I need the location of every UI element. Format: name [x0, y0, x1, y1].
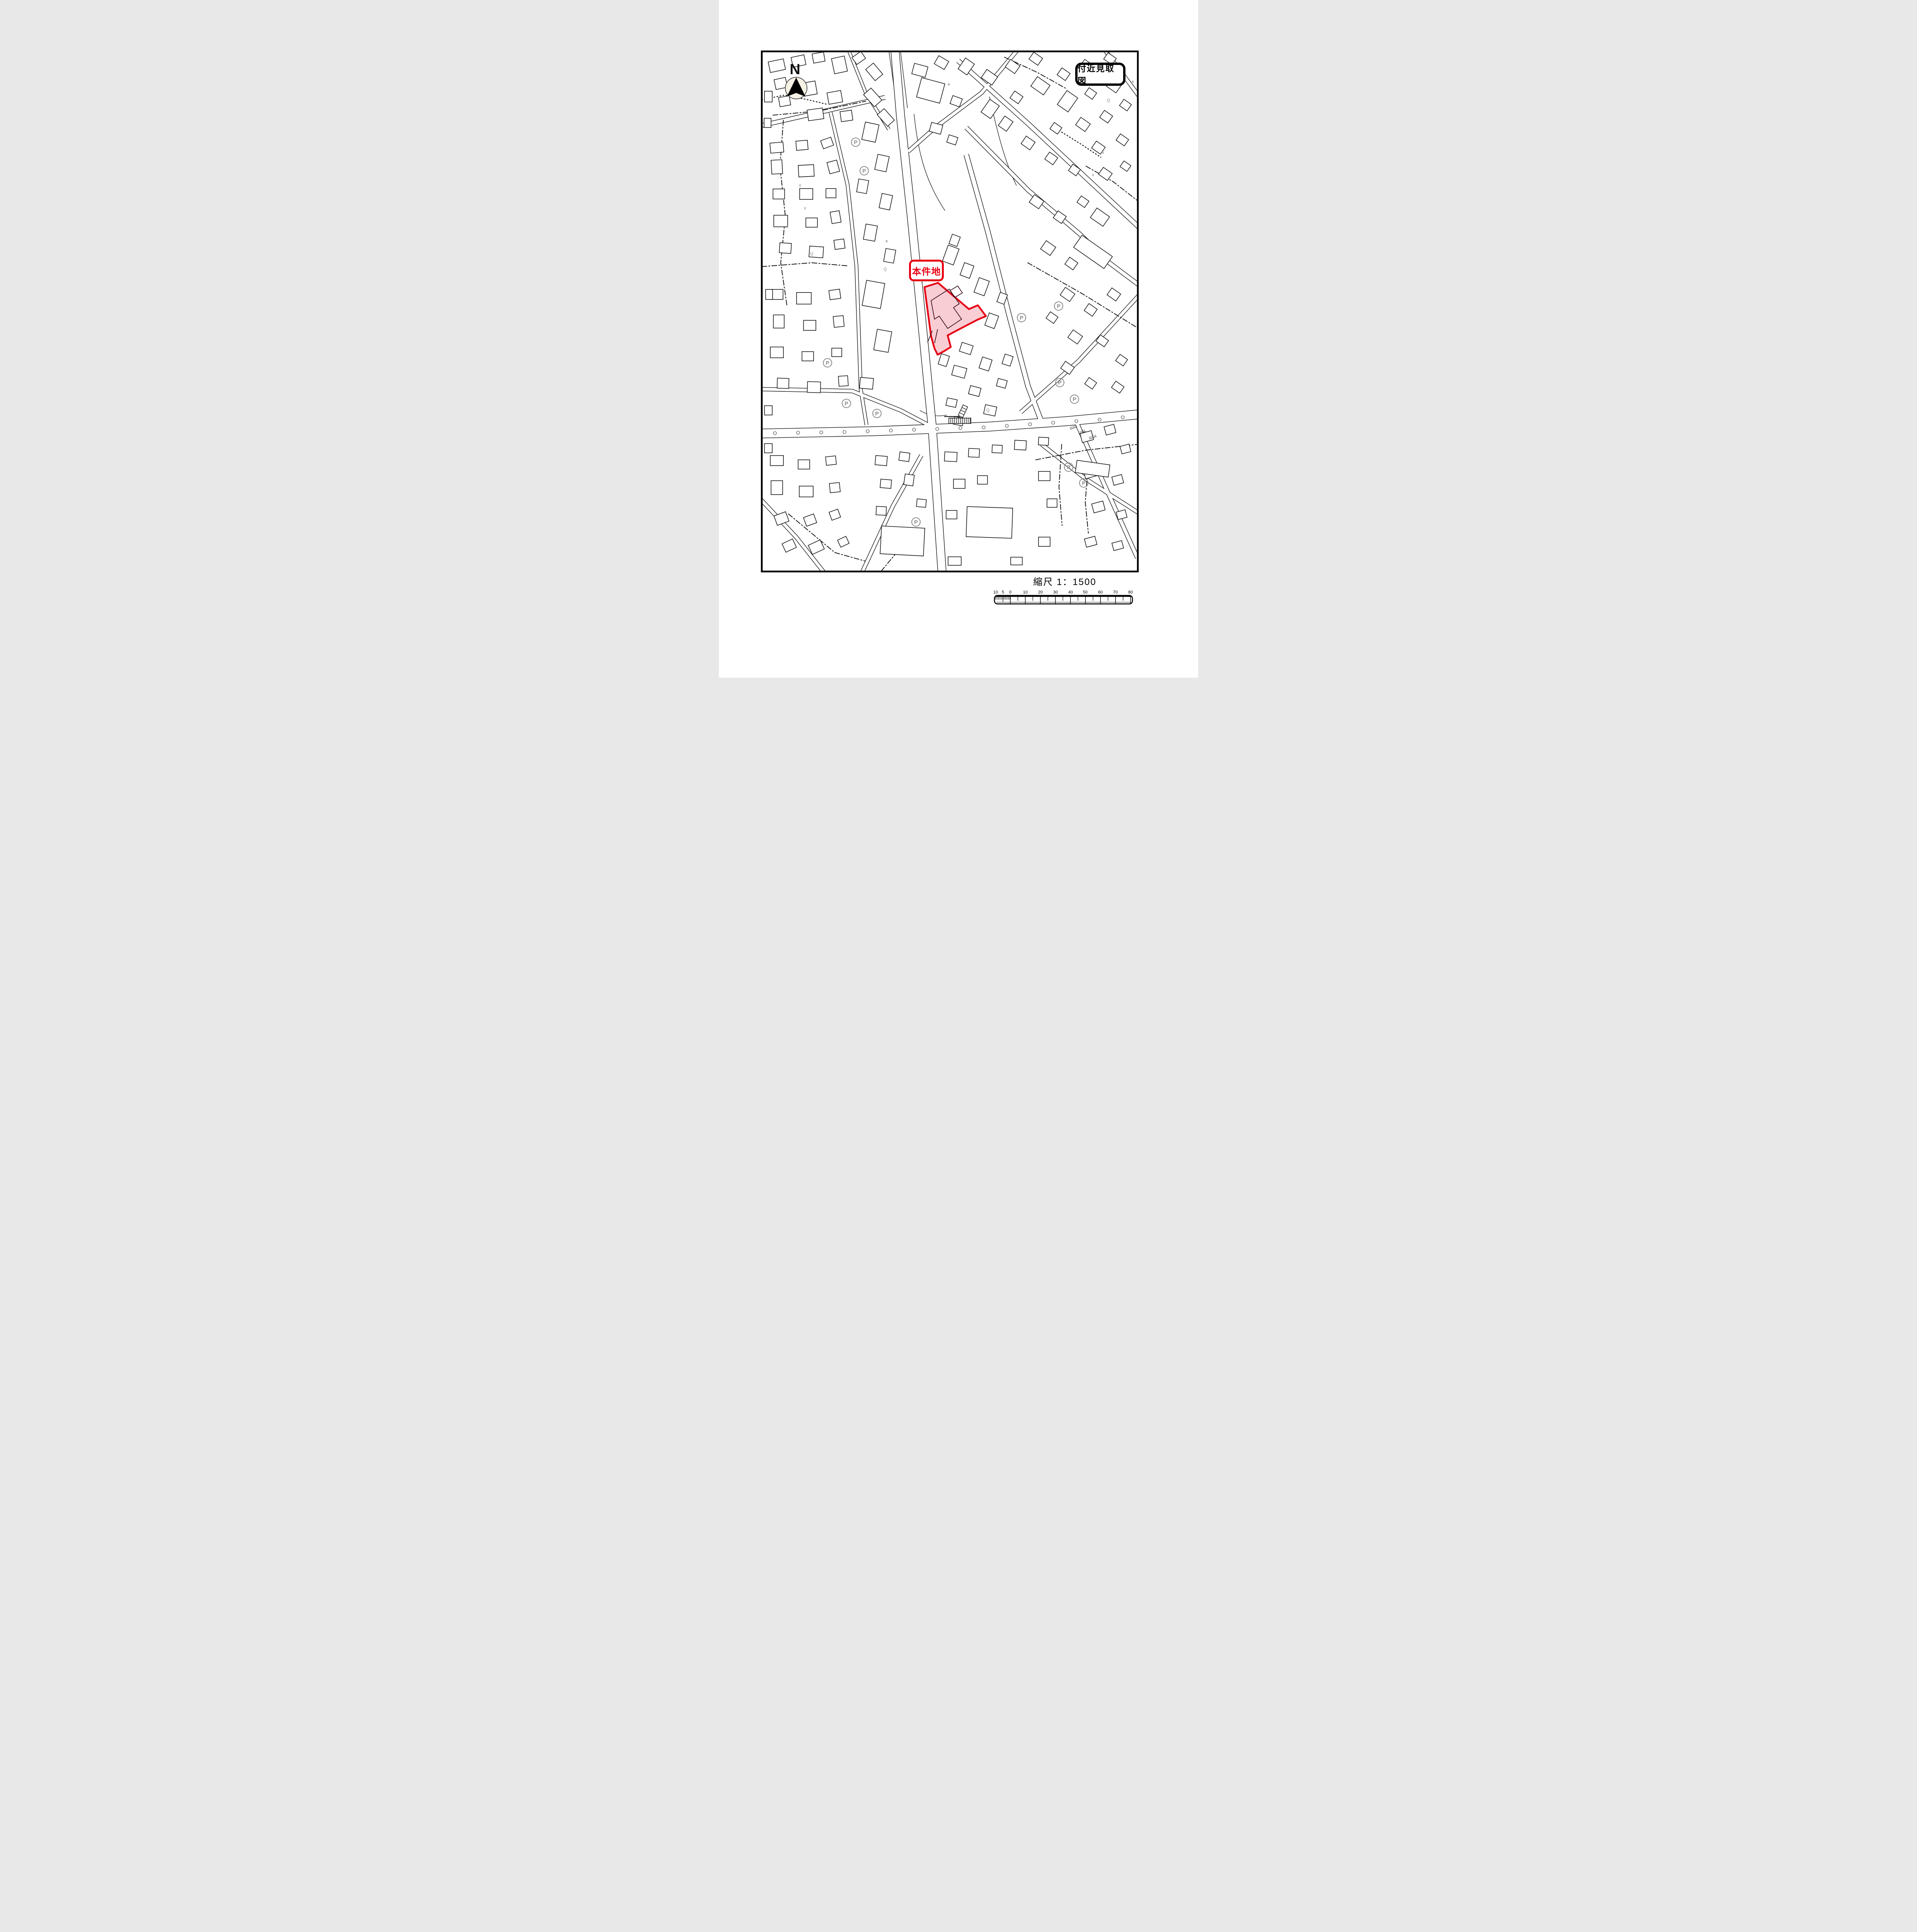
- building: [827, 160, 840, 174]
- svg-text:P: P: [1073, 396, 1076, 402]
- building: [840, 110, 853, 122]
- svg-text:P: P: [854, 139, 857, 145]
- building: [797, 293, 811, 304]
- building: [1112, 541, 1124, 551]
- site-polygon: [924, 283, 986, 355]
- svg-text:P: P: [1067, 464, 1070, 470]
- building: [1074, 235, 1112, 269]
- building: [969, 386, 981, 396]
- building: [1115, 354, 1127, 366]
- building: [1096, 335, 1109, 347]
- ruler-label: 50: [1083, 590, 1088, 595]
- building: [768, 59, 786, 73]
- building: [1038, 437, 1049, 445]
- building: [834, 239, 845, 249]
- building: [830, 211, 841, 224]
- building: [764, 118, 771, 128]
- building: [953, 479, 965, 488]
- building: [798, 165, 814, 177]
- building: [829, 483, 840, 493]
- building: [1119, 99, 1131, 111]
- map-mark: ∨: [1102, 150, 1105, 155]
- ruler-label: 40: [1068, 590, 1073, 595]
- building: [1116, 134, 1129, 146]
- building: [879, 194, 892, 210]
- building: [1107, 288, 1121, 301]
- map-mark: Q: [884, 267, 887, 272]
- building: [1104, 424, 1116, 435]
- building: [829, 509, 841, 520]
- building: [880, 526, 925, 556]
- building: [771, 481, 783, 495]
- parking-icon: P: [842, 399, 851, 408]
- map-mark: ∨: [798, 183, 802, 188]
- parking-icon: P: [1070, 395, 1079, 403]
- building: [866, 63, 883, 81]
- north-arrow: N: [785, 61, 807, 99]
- map-mark: Q: [1107, 98, 1110, 103]
- building: [1100, 111, 1113, 123]
- map-mark: Q: [986, 408, 990, 413]
- building: [770, 142, 784, 153]
- building: [764, 444, 772, 453]
- parking-icon: P: [1054, 302, 1063, 310]
- north-label: N: [790, 61, 800, 78]
- building: [826, 189, 836, 198]
- building: [998, 116, 1013, 131]
- building: [838, 376, 848, 386]
- building: [777, 378, 789, 388]
- building: [942, 245, 959, 265]
- building: [779, 243, 792, 253]
- building: [1076, 117, 1090, 132]
- building: [806, 218, 817, 227]
- building: [1084, 378, 1096, 389]
- svg-text:P: P: [1082, 480, 1085, 486]
- building: [1057, 90, 1078, 112]
- building: [944, 452, 957, 462]
- building: [804, 320, 816, 330]
- building: [833, 316, 844, 328]
- building: [1010, 91, 1023, 104]
- building: [884, 248, 896, 263]
- map-mark: *: [885, 239, 888, 247]
- building: [984, 405, 997, 416]
- building: [1112, 474, 1124, 485]
- building: [966, 507, 1013, 538]
- building: [1098, 167, 1112, 180]
- svg-text:P: P: [844, 400, 848, 406]
- svg-text:P: P: [1057, 303, 1060, 309]
- building: [875, 456, 887, 466]
- svg-text:P: P: [1020, 315, 1023, 321]
- building: [1060, 287, 1075, 302]
- building: [1047, 499, 1057, 507]
- map-title-box: 付近見取図: [1075, 63, 1125, 86]
- building: [1090, 208, 1110, 226]
- building: [1084, 304, 1097, 316]
- building: [1065, 257, 1078, 270]
- svg-text:P: P: [862, 168, 866, 174]
- building: [827, 90, 843, 104]
- building: [764, 91, 772, 102]
- building: [880, 479, 892, 488]
- building: [1112, 381, 1124, 393]
- parking-icon: P: [851, 138, 860, 146]
- ruler-label: 0: [1009, 590, 1011, 595]
- building: [981, 99, 999, 119]
- parking-icon: P: [912, 518, 920, 526]
- ruler-label: 80: [1128, 590, 1133, 595]
- map-canvas: PPPPPPPPPPPPQQQQQ∨∨∨∨∨*** N 105010203040…: [719, 0, 1198, 678]
- building: [764, 406, 772, 415]
- building: [807, 108, 824, 121]
- ruler-label: 10: [1023, 590, 1028, 595]
- building: [862, 280, 885, 308]
- svg-text:P: P: [1058, 379, 1061, 386]
- ruler-label: 10: [993, 590, 998, 595]
- building: [938, 354, 950, 366]
- svg-text:P: P: [826, 360, 829, 366]
- map-title: 付近見取図: [1078, 62, 1123, 87]
- building: [949, 234, 960, 247]
- map-mark: Q: [810, 252, 814, 256]
- building: [1021, 136, 1035, 150]
- ruler-label: 60: [1098, 590, 1103, 595]
- building: [802, 352, 814, 361]
- building: [831, 56, 848, 74]
- map-generated-layers: PPPPPPPPPPPPQQQQQ∨∨∨∨∨***: [759, 48, 1140, 575]
- ruler-label: 30: [1053, 590, 1058, 595]
- building: [799, 486, 813, 497]
- map-mark: ∨: [804, 206, 807, 211]
- building: [1002, 354, 1013, 366]
- building: [877, 109, 895, 126]
- building: [838, 536, 849, 547]
- building: [979, 357, 992, 371]
- building: [946, 398, 957, 408]
- dashdot-boundary-line: [788, 514, 865, 561]
- building: [875, 154, 889, 172]
- road: [861, 455, 921, 575]
- map-mark: *: [947, 82, 950, 90]
- building: [1031, 77, 1050, 95]
- building: [916, 499, 926, 507]
- vicinity-map-page: PPPPPPPPPPPPQQQQQ∨∨∨∨∨*** N 105010203040…: [719, 0, 1198, 678]
- building: [985, 313, 999, 329]
- building: [860, 378, 873, 389]
- parking-icon: P: [860, 167, 868, 175]
- ruler-label: 20: [1038, 590, 1043, 595]
- building: [952, 365, 967, 378]
- site-label: 本件地: [912, 264, 941, 277]
- building: [782, 539, 796, 552]
- building: [778, 96, 791, 107]
- building: [807, 381, 821, 393]
- building: [899, 452, 910, 461]
- building: [977, 476, 987, 484]
- building: [1011, 557, 1022, 565]
- road-casing: [759, 389, 932, 427]
- map-mark: ∨: [785, 224, 788, 229]
- building: [1057, 68, 1070, 81]
- svg-text:P: P: [875, 410, 878, 417]
- map-mark: *: [1131, 79, 1134, 87]
- parking-icon: P: [873, 409, 881, 418]
- building: [1068, 330, 1083, 344]
- building: [946, 510, 957, 519]
- building: [968, 448, 979, 457]
- building: [1084, 88, 1096, 99]
- building: [770, 456, 783, 466]
- building: [950, 95, 962, 107]
- building: [863, 224, 877, 241]
- building: [798, 460, 810, 469]
- ruler-label: 5: [1002, 590, 1004, 595]
- site-label-box: 本件地: [909, 260, 944, 281]
- road: [1021, 294, 1140, 412]
- building: [771, 160, 783, 174]
- building: [1029, 52, 1043, 65]
- building: [992, 445, 1002, 453]
- scale-ratio-text: 縮尺 1：1500: [1016, 574, 1113, 588]
- scale-bar: 10501020304050607080: [993, 590, 1133, 604]
- building: [800, 189, 813, 199]
- building: [796, 140, 808, 151]
- building: [804, 514, 817, 526]
- ruler-label: 70: [1113, 590, 1118, 595]
- building: [1050, 122, 1062, 134]
- building: [856, 179, 869, 194]
- building: [773, 315, 784, 328]
- building: [874, 329, 892, 352]
- parking-icon: P: [823, 359, 832, 367]
- stairs-icon: [958, 405, 967, 418]
- building: [1120, 161, 1131, 171]
- building: [959, 342, 973, 355]
- dashdot-boundary-line: [762, 263, 848, 267]
- building: [821, 137, 834, 149]
- building: [996, 378, 1007, 388]
- building: [912, 63, 928, 77]
- building: [1120, 444, 1131, 454]
- building: [1039, 537, 1050, 546]
- building: [770, 347, 783, 358]
- building: [934, 56, 949, 70]
- building: [862, 122, 879, 142]
- site-layer: [924, 283, 986, 355]
- road: [759, 498, 826, 575]
- building: [876, 506, 886, 515]
- svg-text:P: P: [914, 519, 918, 525]
- building: [1045, 152, 1058, 165]
- building: [1091, 501, 1105, 513]
- building: [832, 348, 842, 357]
- building: [1040, 241, 1056, 256]
- building: [773, 189, 785, 199]
- building: [1046, 312, 1058, 323]
- building: [916, 78, 945, 103]
- building: [1029, 195, 1044, 209]
- building: [904, 474, 914, 486]
- map-mark: ∨: [1091, 173, 1095, 177]
- building: [766, 289, 773, 299]
- building: [948, 557, 961, 565]
- building: [1084, 536, 1097, 547]
- building: [974, 277, 989, 296]
- building: [1014, 440, 1026, 450]
- building: [812, 52, 825, 63]
- parking-icon: P: [1017, 313, 1026, 322]
- building: [947, 135, 958, 145]
- building: [1039, 471, 1050, 481]
- building: [960, 263, 974, 279]
- building: [1077, 196, 1089, 207]
- building: [829, 289, 841, 300]
- building: [826, 456, 836, 466]
- road: [759, 389, 932, 427]
